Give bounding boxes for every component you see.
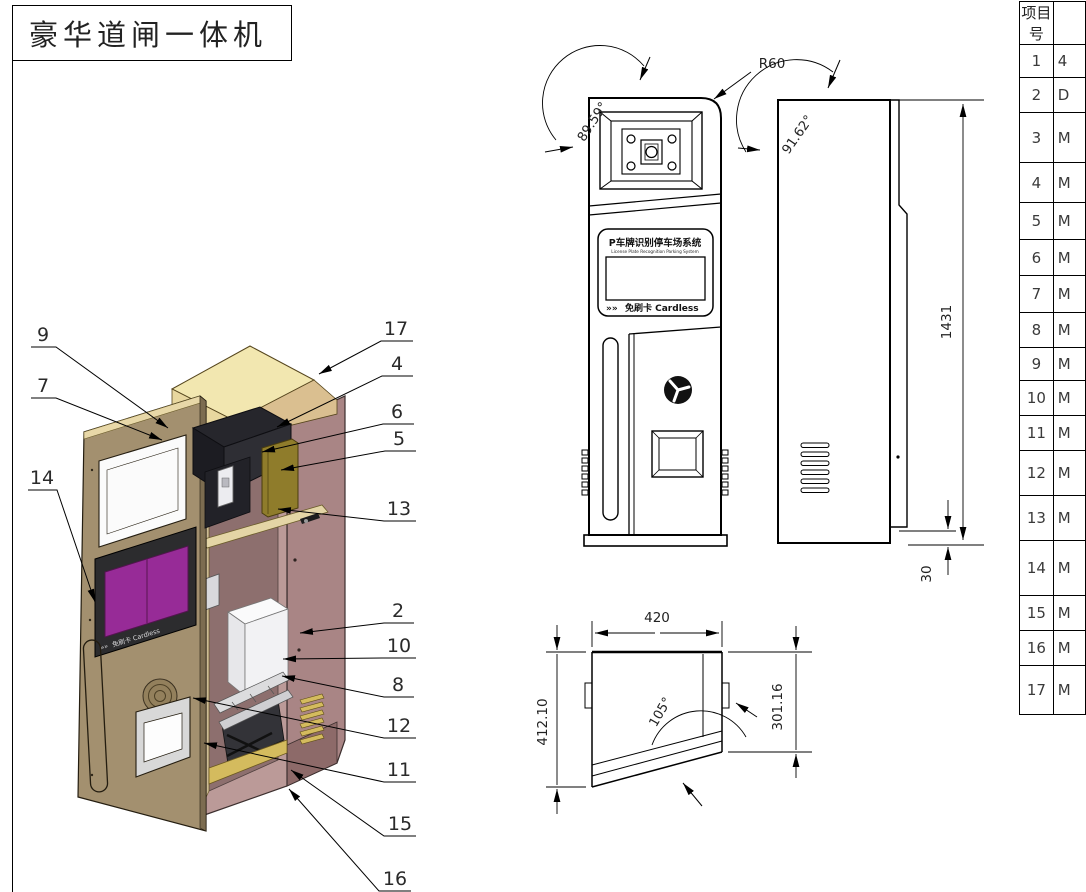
- exploded-view: »» 免刷卡 Cardless: [28, 318, 416, 891]
- svg-text:301.16: 301.16: [770, 683, 786, 730]
- dim-depth-right: 301.16: [728, 626, 812, 778]
- fan-logo-icon: [664, 376, 692, 404]
- door-edge-profile: [890, 100, 907, 527]
- dim-side-angle: 91.62°: [737, 60, 840, 158]
- small-box: [205, 574, 219, 610]
- sign-subtitle: License Plate Recognition Parking System: [611, 249, 698, 254]
- hinge-nubs: [582, 450, 728, 495]
- hinge-tab: [722, 683, 729, 708]
- callout-label: 16: [383, 868, 407, 890]
- callout-label: 9: [37, 324, 49, 346]
- dim-base-height: 30: [919, 500, 948, 583]
- callout-label: 7: [37, 375, 49, 397]
- callout-label: 4: [391, 353, 403, 375]
- hinge-tab: [585, 683, 592, 708]
- svg-text:91.62°: 91.62°: [779, 113, 816, 157]
- light-slot: [603, 338, 618, 520]
- drawing-sheet: 豪华道闸一体机 项目号 14 2D 3M 4M 5M 6M 7M 8M 9M 1…: [0, 0, 1086, 892]
- svg-text:89.59°: 89.59°: [575, 100, 611, 145]
- callout-label: 17: [384, 318, 408, 340]
- callout-label: 2: [392, 600, 404, 622]
- svg-text:420: 420: [644, 610, 670, 626]
- sign-chevrons: »»: [606, 304, 618, 314]
- front-screen-window: [652, 431, 703, 477]
- engineering-drawing: »» 免刷卡 Cardless: [0, 0, 1086, 892]
- callout-label: 15: [388, 813, 412, 835]
- callout-label: 14: [30, 467, 54, 489]
- sign-window: [606, 257, 705, 300]
- top-view: 420 412.10 301.16: [535, 610, 812, 814]
- side-vent-grille: [801, 443, 829, 493]
- dim-height: 1431: [939, 104, 963, 540]
- dim-corner-radius: R60: [714, 56, 785, 99]
- base-plate: [584, 535, 727, 546]
- callout-label: 6: [391, 401, 403, 423]
- sign-title: P车牌识别停车场系统: [609, 237, 702, 249]
- dim-depth-left: 412.10: [535, 625, 586, 814]
- callout-label: 10: [387, 635, 411, 657]
- callout-label: 5: [393, 428, 405, 450]
- callout-label: 8: [392, 674, 404, 696]
- camera-mount: [600, 112, 702, 189]
- callout-label: 12: [387, 715, 411, 737]
- side-view: 91.62° 1431 30: [737, 60, 984, 583]
- camera-lens-icon: [646, 147, 657, 158]
- svg-text:30: 30: [919, 565, 935, 582]
- svg-text:1431: 1431: [939, 305, 955, 339]
- sign-cardless: 免刷卡 Cardless: [625, 302, 699, 314]
- svg-text:412.10: 412.10: [535, 698, 551, 745]
- front-door-panel: »» 免刷卡 Cardless: [78, 396, 206, 831]
- dim-width: 420: [592, 610, 722, 647]
- dim-door-angle: 105°: [647, 695, 757, 806]
- sign-panel: P车牌识别停车场系统 License Plate Recognition Par…: [598, 229, 713, 316]
- callout-label: 11: [387, 759, 411, 781]
- callout-label: 13: [387, 498, 411, 520]
- screw-dot: [896, 455, 899, 458]
- front-view: P车牌识别停车场系统 License Plate Recognition Par…: [543, 46, 786, 546]
- svg-text:105°: 105°: [647, 695, 676, 730]
